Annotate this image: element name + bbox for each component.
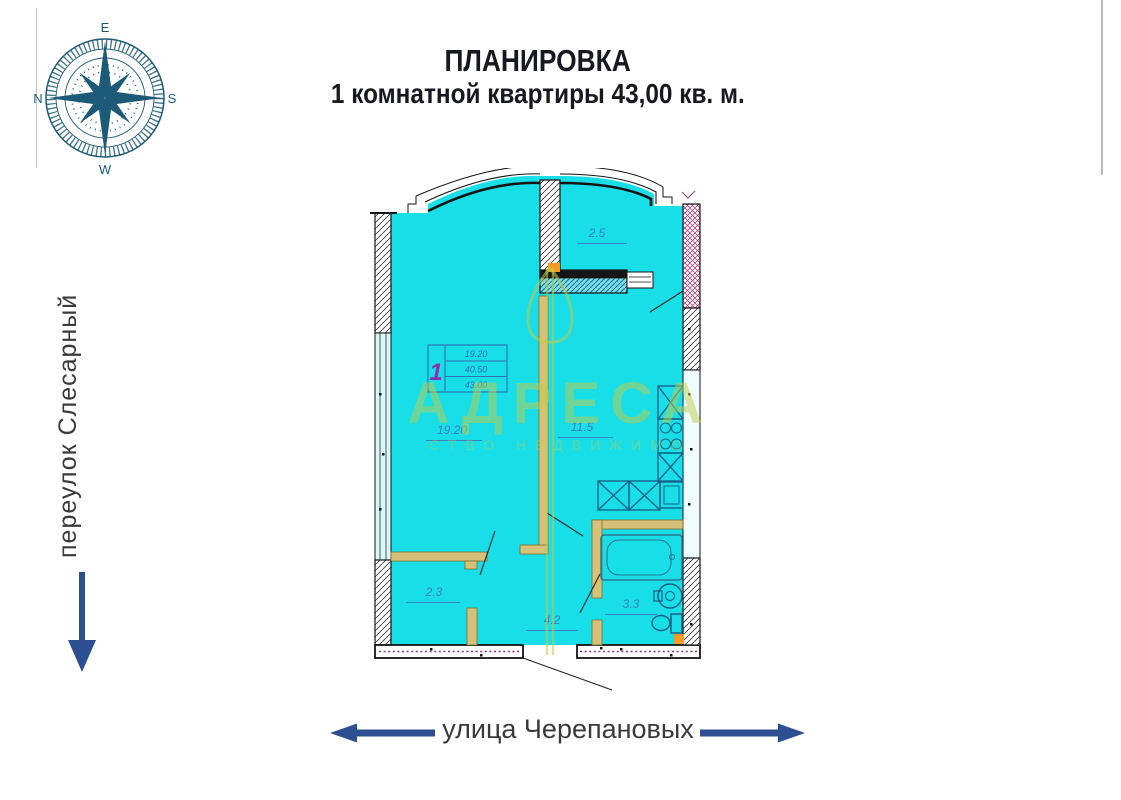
wall-pink-hatch (683, 204, 700, 308)
room-label-balcony: 2.5 (588, 226, 606, 240)
stamp-apartment-number: 1 (429, 359, 442, 386)
street-arrow-down (68, 572, 96, 672)
stamp-living-area: 19.20 (465, 349, 488, 359)
room-label-bathroom: 3.3 (623, 597, 640, 611)
orange-marker (674, 634, 684, 644)
stamp-area-no-balcony: 40.50 (465, 365, 488, 375)
room-label-wardrobe: 2.3 (425, 585, 443, 599)
right-edge-line (1101, 0, 1103, 175)
street-label-left: переулок Слесарный (54, 280, 94, 572)
page-subtitle: 1 комнатной квартиры 43,00 кв. м. (331, 79, 745, 109)
compass-letter-top: E (101, 20, 110, 35)
room-label-hallway: 4.2 (544, 613, 561, 627)
page-title: ПЛАНИРОВКА (445, 44, 631, 77)
street-arrow-right (700, 722, 805, 744)
street-label-bottom: улица Черепановых (428, 714, 708, 745)
room-label-living: 19.20 (437, 423, 467, 437)
window-sill (627, 272, 653, 288)
compass-letter-bottom: W (99, 162, 112, 177)
stamp-total-area: 43.00 (465, 380, 488, 390)
street-arrow-left (330, 722, 435, 744)
orange-marker (548, 263, 560, 272)
compass-rose: E S W N (30, 16, 180, 180)
window-right (683, 370, 700, 558)
pink-check-mark (682, 191, 695, 198)
compass-letter-right: S (168, 91, 177, 106)
title-block: ПЛАНИРОВКА 1 комнатной квартиры 43,00 кв… (258, 44, 818, 110)
floorplan-page: E S W N ПЛАНИРОВКА 1 комнатной квартиры … (0, 0, 1121, 800)
window-left (375, 333, 391, 560)
floor-plan: 1 19.20 40.50 43.00 2.5 19.20 11.5 2.3 4… (370, 168, 715, 698)
entrance-door-swing (523, 658, 612, 690)
room-label-kitchen: 11.5 (571, 420, 594, 434)
compass-letter-left: N (33, 91, 42, 106)
